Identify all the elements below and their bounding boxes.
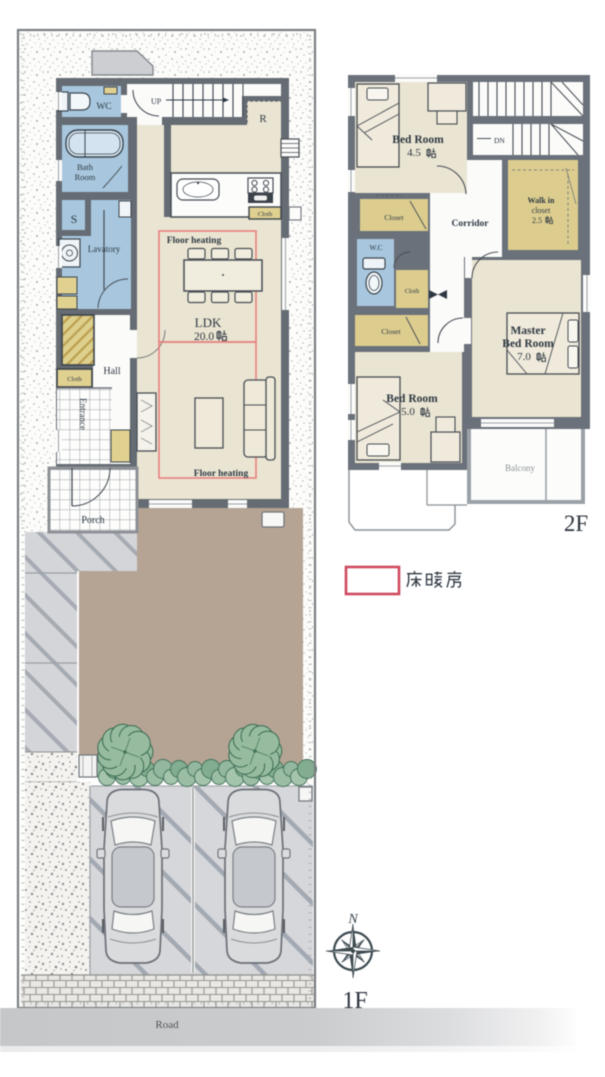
svg-text:DN: DN xyxy=(494,136,505,145)
svg-text:7.0: 7.0 xyxy=(517,351,531,363)
svg-text:Room: Room xyxy=(75,172,96,182)
svg-text:2.5: 2.5 xyxy=(532,216,542,225)
svg-text:WC: WC xyxy=(96,102,111,112)
svg-text:4.5: 4.5 xyxy=(407,147,421,159)
svg-text:Bed Room: Bed Room xyxy=(386,393,438,405)
svg-text:Floor heating: Floor heating xyxy=(167,236,222,246)
svg-text:Bed Room: Bed Room xyxy=(502,338,554,350)
svg-text:Bed Room: Bed Room xyxy=(392,134,444,146)
svg-text:W.C: W.C xyxy=(369,243,382,252)
svg-text:Walk in: Walk in xyxy=(528,196,555,205)
svg-text:2F: 2F xyxy=(564,511,588,536)
svg-text:Floor heating: Floor heating xyxy=(194,469,249,479)
svg-text:Master: Master xyxy=(510,325,545,337)
svg-text:Closet: Closet xyxy=(381,327,401,336)
svg-text:Cloth: Cloth xyxy=(258,211,273,218)
svg-text:Bath: Bath xyxy=(77,162,94,172)
svg-text:Balcony: Balcony xyxy=(505,463,535,473)
svg-text:Porch: Porch xyxy=(81,515,104,526)
svg-text:closet: closet xyxy=(532,206,551,215)
svg-text:5.0: 5.0 xyxy=(401,406,415,418)
svg-text:Closet: Closet xyxy=(384,213,404,222)
svg-text:N: N xyxy=(347,912,358,927)
svg-text:LDK: LDK xyxy=(195,315,222,330)
svg-text:Entrance: Entrance xyxy=(78,398,88,430)
svg-text:20.0: 20.0 xyxy=(194,331,214,343)
svg-text:Cloth: Cloth xyxy=(67,376,82,383)
svg-text:Hall: Hall xyxy=(103,366,120,377)
svg-text:UP: UP xyxy=(151,97,162,106)
svg-text:Lavatory: Lavatory xyxy=(88,244,121,254)
svg-text:S: S xyxy=(71,212,78,226)
svg-text:Corridor: Corridor xyxy=(452,219,490,229)
svg-text:R: R xyxy=(259,113,267,125)
svg-text:Road: Road xyxy=(155,1019,179,1031)
svg-text:Cloth: Cloth xyxy=(405,288,420,295)
